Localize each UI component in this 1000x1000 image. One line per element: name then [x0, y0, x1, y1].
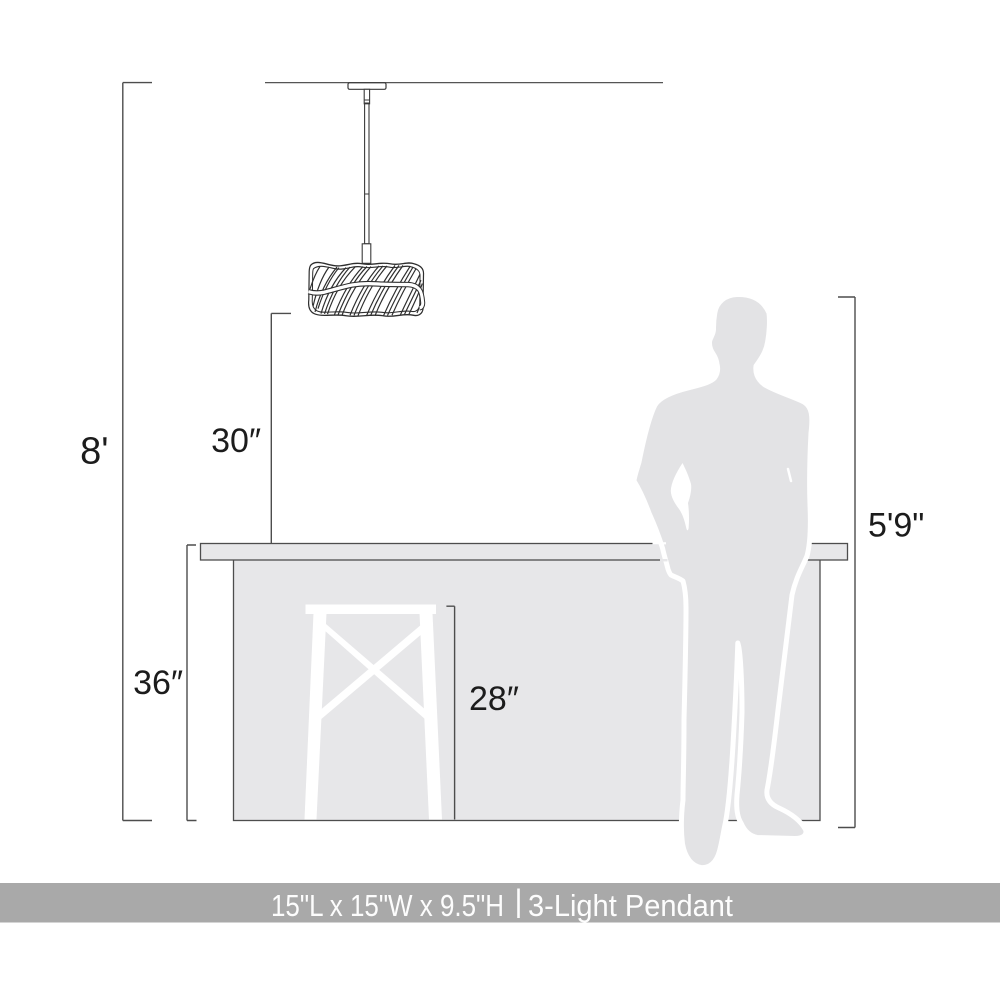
- svg-text:3-Light Pendant: 3-Light Pendant: [528, 888, 733, 923]
- svg-text:36″: 36″: [133, 664, 183, 702]
- svg-text:28″: 28″: [469, 680, 519, 718]
- svg-text:30″: 30″: [211, 422, 261, 460]
- svg-text:15"L x 15"W x 9.5"H: 15"L x 15"W x 9.5"H: [271, 888, 504, 923]
- svg-text:5'9": 5'9": [868, 507, 924, 545]
- svg-text:8': 8': [80, 431, 108, 473]
